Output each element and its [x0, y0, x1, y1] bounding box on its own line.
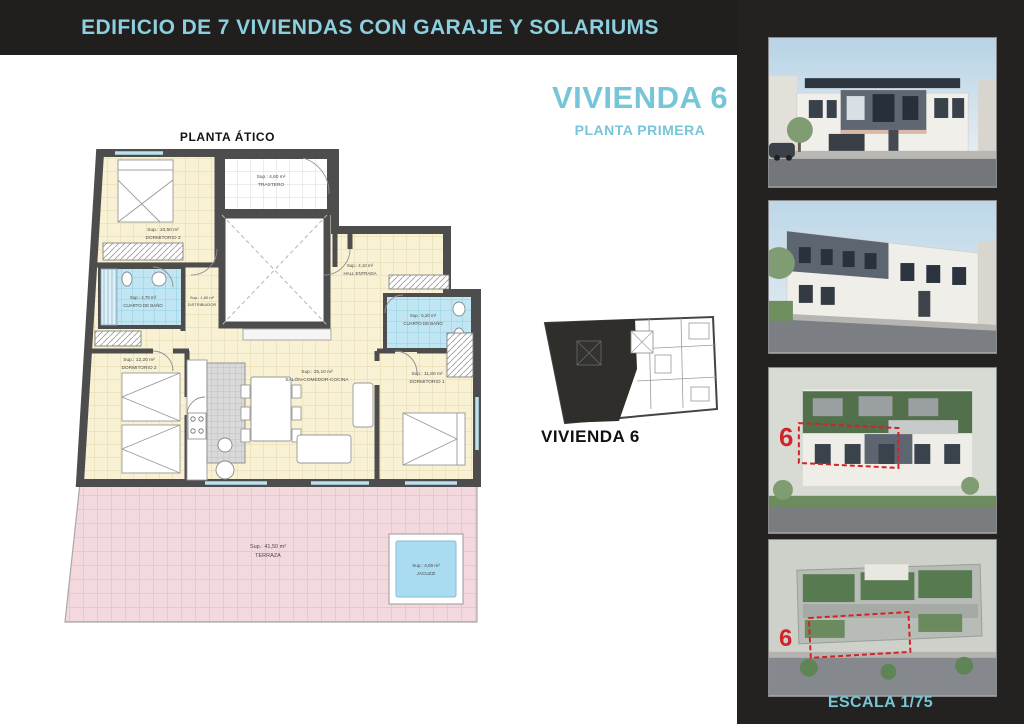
front-elevation-illustration	[769, 38, 996, 187]
room-area: Sup.: 4,10 m²	[347, 263, 374, 268]
room-name: DORMITORIO 1	[409, 379, 444, 385]
sink-icon	[152, 272, 166, 286]
lightwell	[222, 215, 327, 325]
sink-icon	[218, 438, 232, 452]
room-area: Sup.: 25,10 m²	[301, 369, 333, 375]
roof-view-illustration: 6	[769, 540, 996, 696]
header-band: EDIFICIO DE 7 VIVIENDAS CON GARAJE Y SOL…	[0, 0, 740, 55]
room-jacuzzi: Sup.: 4,00 m² JACUZZI	[389, 534, 463, 604]
unit-marker: 6	[779, 625, 792, 652]
key-plan-label: VIVIENDA 6	[541, 427, 640, 447]
scale-label: ESCALA 1/75	[737, 694, 1024, 712]
basket-icon	[216, 461, 234, 479]
render-sidebar: 6 6	[737, 0, 1024, 724]
room-name: TRASTERO	[258, 182, 284, 188]
hall-cabinet	[243, 329, 331, 340]
tree-icon	[961, 477, 979, 495]
key-plan-shaded-units	[545, 319, 637, 423]
room-area: Sup.: 12,20 m²	[123, 357, 155, 363]
floor-plan-drawing: Sup.: 41,50 m² TERRAZA Sup.: 4,00 m² JAC…	[55, 145, 500, 630]
room-name: DORMITORIO 2	[121, 365, 156, 371]
room-name: DORMITORIO 3	[145, 235, 180, 241]
room-name: TERRAZA	[255, 553, 281, 559]
street-view-illustration	[769, 201, 996, 353]
aerial-view-illustration: 6	[769, 368, 996, 533]
plan-sheet-page: EDIFICIO DE 7 VIVIENDAS CON GARAJE Y SOL…	[0, 0, 1024, 724]
room-area: Sup.: 10,50 m²	[147, 227, 179, 233]
room-area: Sup.: 5,20 m²	[410, 313, 437, 318]
room-bano-izquierdo: Sup.: 4,70 m² CUARTO DE BAÑO	[100, 267, 183, 327]
stove-icon	[188, 413, 206, 439]
key-plan-drawing	[533, 311, 723, 431]
render-photo-street-view	[768, 200, 997, 354]
hedge-icon	[769, 301, 793, 321]
room-area: Sup.: 4,70 m²	[130, 295, 157, 300]
tree-icon	[881, 664, 897, 680]
floor-plan-title: PLANTA ÁTICO	[120, 130, 335, 144]
room-name: CUARTO DE BAÑO	[403, 321, 443, 326]
room-area: Sup.: 4,00 m²	[412, 563, 440, 568]
room-name: SALÓN-COMEDOR-COCINA	[285, 376, 349, 383]
dining-table-icon	[241, 377, 301, 442]
room-name: CUARTO DE BAÑO	[123, 303, 163, 308]
armchair-icon	[353, 383, 373, 427]
toilet-icon	[122, 272, 132, 286]
sink-icon	[453, 302, 465, 316]
render-photo-aerial-view: 6	[768, 367, 997, 534]
room-name: DISTRIBUIDOR	[188, 302, 217, 307]
unit-marker: 6	[779, 424, 793, 452]
tree-icon	[955, 657, 973, 675]
room-trastero: Sup.: 4,60 m² TRASTERO	[222, 156, 330, 212]
bed-icon	[118, 160, 173, 222]
room-area: Sup.: 11,80 m²	[411, 371, 443, 377]
sofa-icon	[297, 435, 351, 463]
tree-icon	[773, 480, 793, 500]
tree-icon	[800, 659, 818, 677]
bed-icon	[403, 413, 465, 465]
room-area: Sup.: 41,50 m²	[250, 544, 286, 550]
room-name: JACUZZI	[417, 571, 436, 576]
render-photo-roof-view: 6	[768, 539, 997, 697]
room-name: HALL ENTRADA	[343, 271, 376, 276]
page-title: EDIFICIO DE 7 VIVIENDAS CON GARAJE Y SOL…	[0, 0, 740, 55]
room-area: Sup.: 1,80 m²	[190, 295, 215, 300]
shower	[389, 275, 449, 289]
shower	[101, 269, 117, 325]
render-photo-front-elevation	[768, 37, 997, 188]
room-area: Sup.: 4,60 m²	[257, 174, 286, 180]
